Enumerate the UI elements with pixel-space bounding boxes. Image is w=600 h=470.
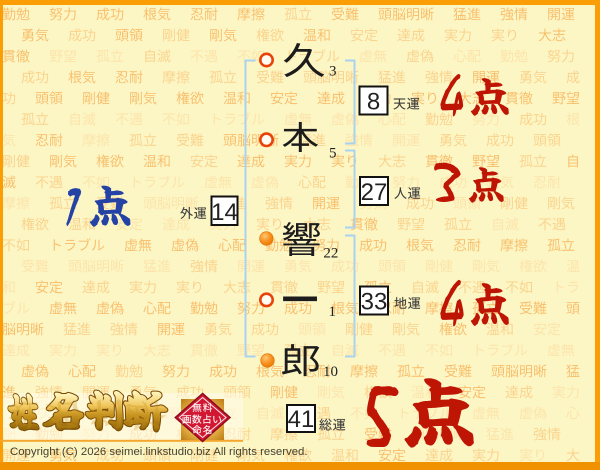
- svg-text:3: 3: [329, 64, 337, 80]
- svg-text:33: 33: [361, 288, 388, 315]
- svg-text:Copyright (C) 2026 seimei.link: Copyright (C) 2026 seimei.linkstudio.biz…: [10, 446, 308, 458]
- svg-text:27: 27: [361, 179, 388, 206]
- svg-text:10: 10: [323, 364, 338, 380]
- svg-text:5: 5: [329, 145, 337, 161]
- svg-text:22: 22: [323, 245, 338, 261]
- svg-text:41: 41: [288, 406, 315, 433]
- svg-text:14: 14: [211, 199, 238, 226]
- svg-text:8: 8: [367, 88, 380, 115]
- svg-text:1: 1: [329, 304, 337, 320]
